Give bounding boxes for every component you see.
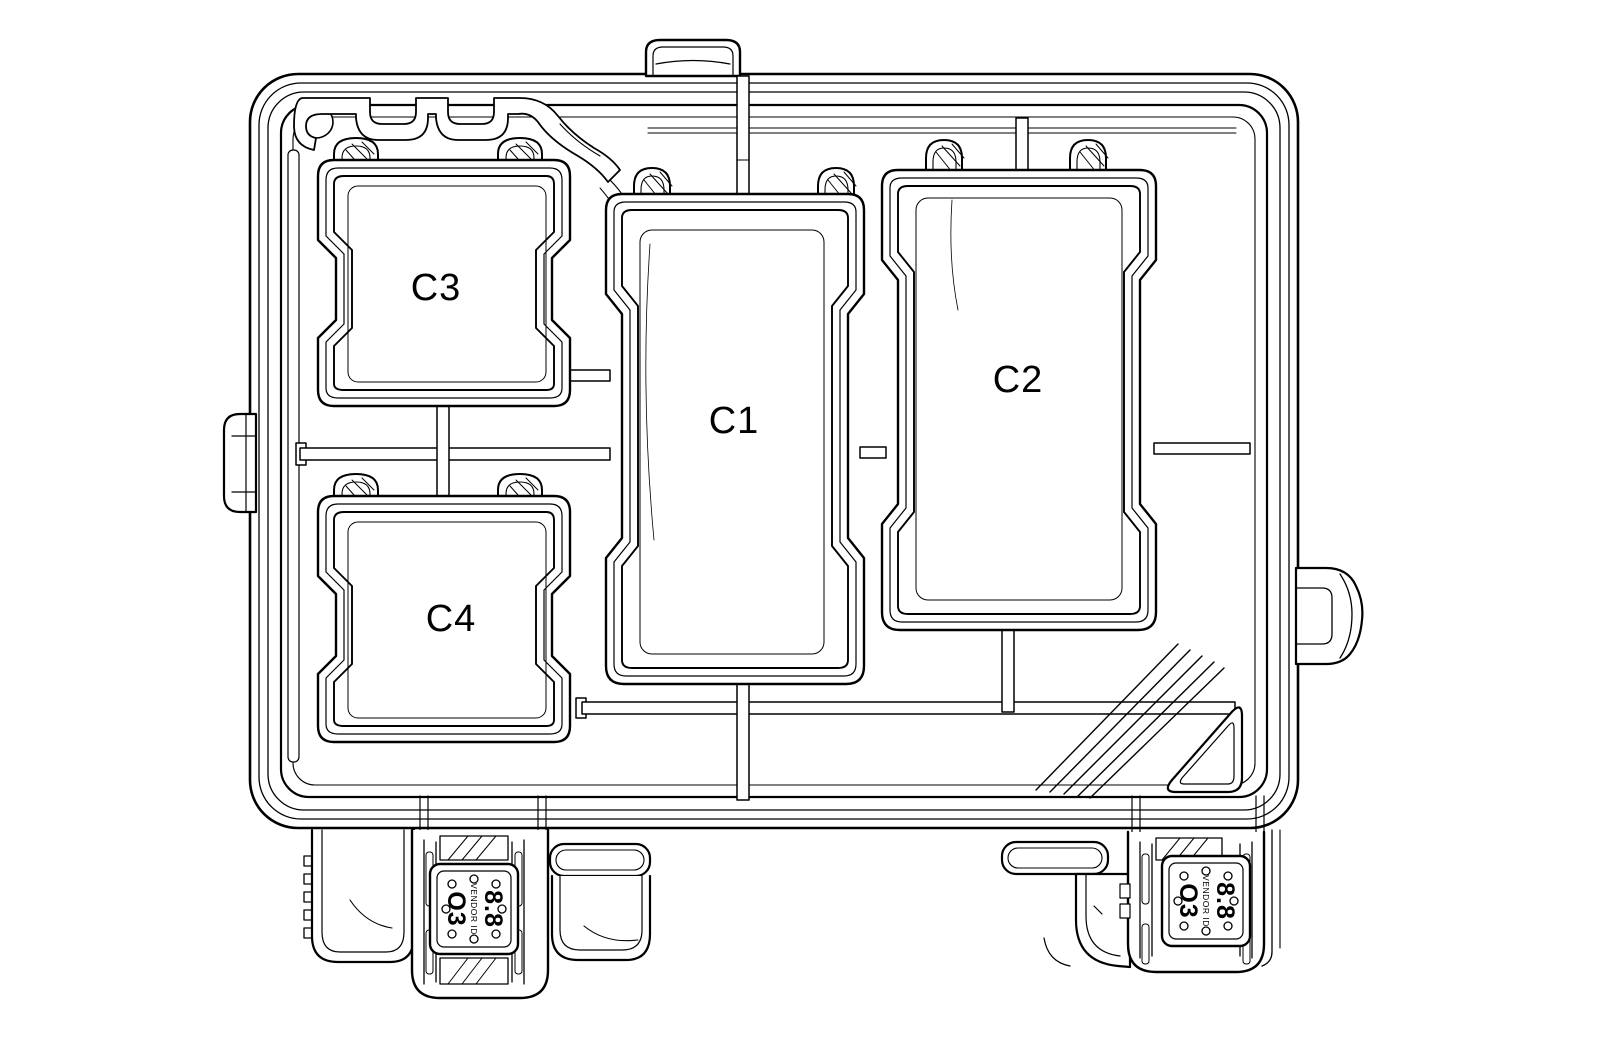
corner-brace-pocket	[1168, 707, 1242, 792]
fuse-block-line-drawing: C3 C4 C1 C2 O3 V	[0, 0, 1600, 1048]
label-c2: C2	[993, 359, 1044, 401]
label-c1: C1	[709, 400, 760, 442]
face-right-cavity-code: O3	[1174, 883, 1202, 918]
top-tab	[646, 40, 740, 76]
face-left-cavity-code: O3	[442, 891, 470, 926]
pin-face-right: O3 VENDOR ID 8.8	[1162, 856, 1250, 946]
face-right-vendor-text: VENDOR ID	[1201, 875, 1211, 927]
face-right-size-code: 8.8	[1211, 882, 1239, 920]
left-tab	[224, 414, 256, 512]
face-left-vendor-text: VENDOR ID	[469, 883, 479, 935]
corner-brace	[1036, 644, 1242, 798]
label-c3: C3	[411, 267, 462, 309]
serration	[304, 856, 312, 938]
label-c4: C4	[426, 598, 477, 640]
connector-tower-left: O3 VENDOR ID 8.8	[304, 796, 650, 998]
diagram-canvas: C3 C4 C1 C2 O3 V	[0, 0, 1600, 1048]
right-tab	[1296, 568, 1362, 664]
connector-tower-right: O3 VENDOR ID 8.8	[1002, 796, 1280, 972]
face-left-size-code: 8.8	[479, 890, 507, 928]
pin-face-left: O3 VENDOR ID 8.8	[430, 864, 518, 954]
